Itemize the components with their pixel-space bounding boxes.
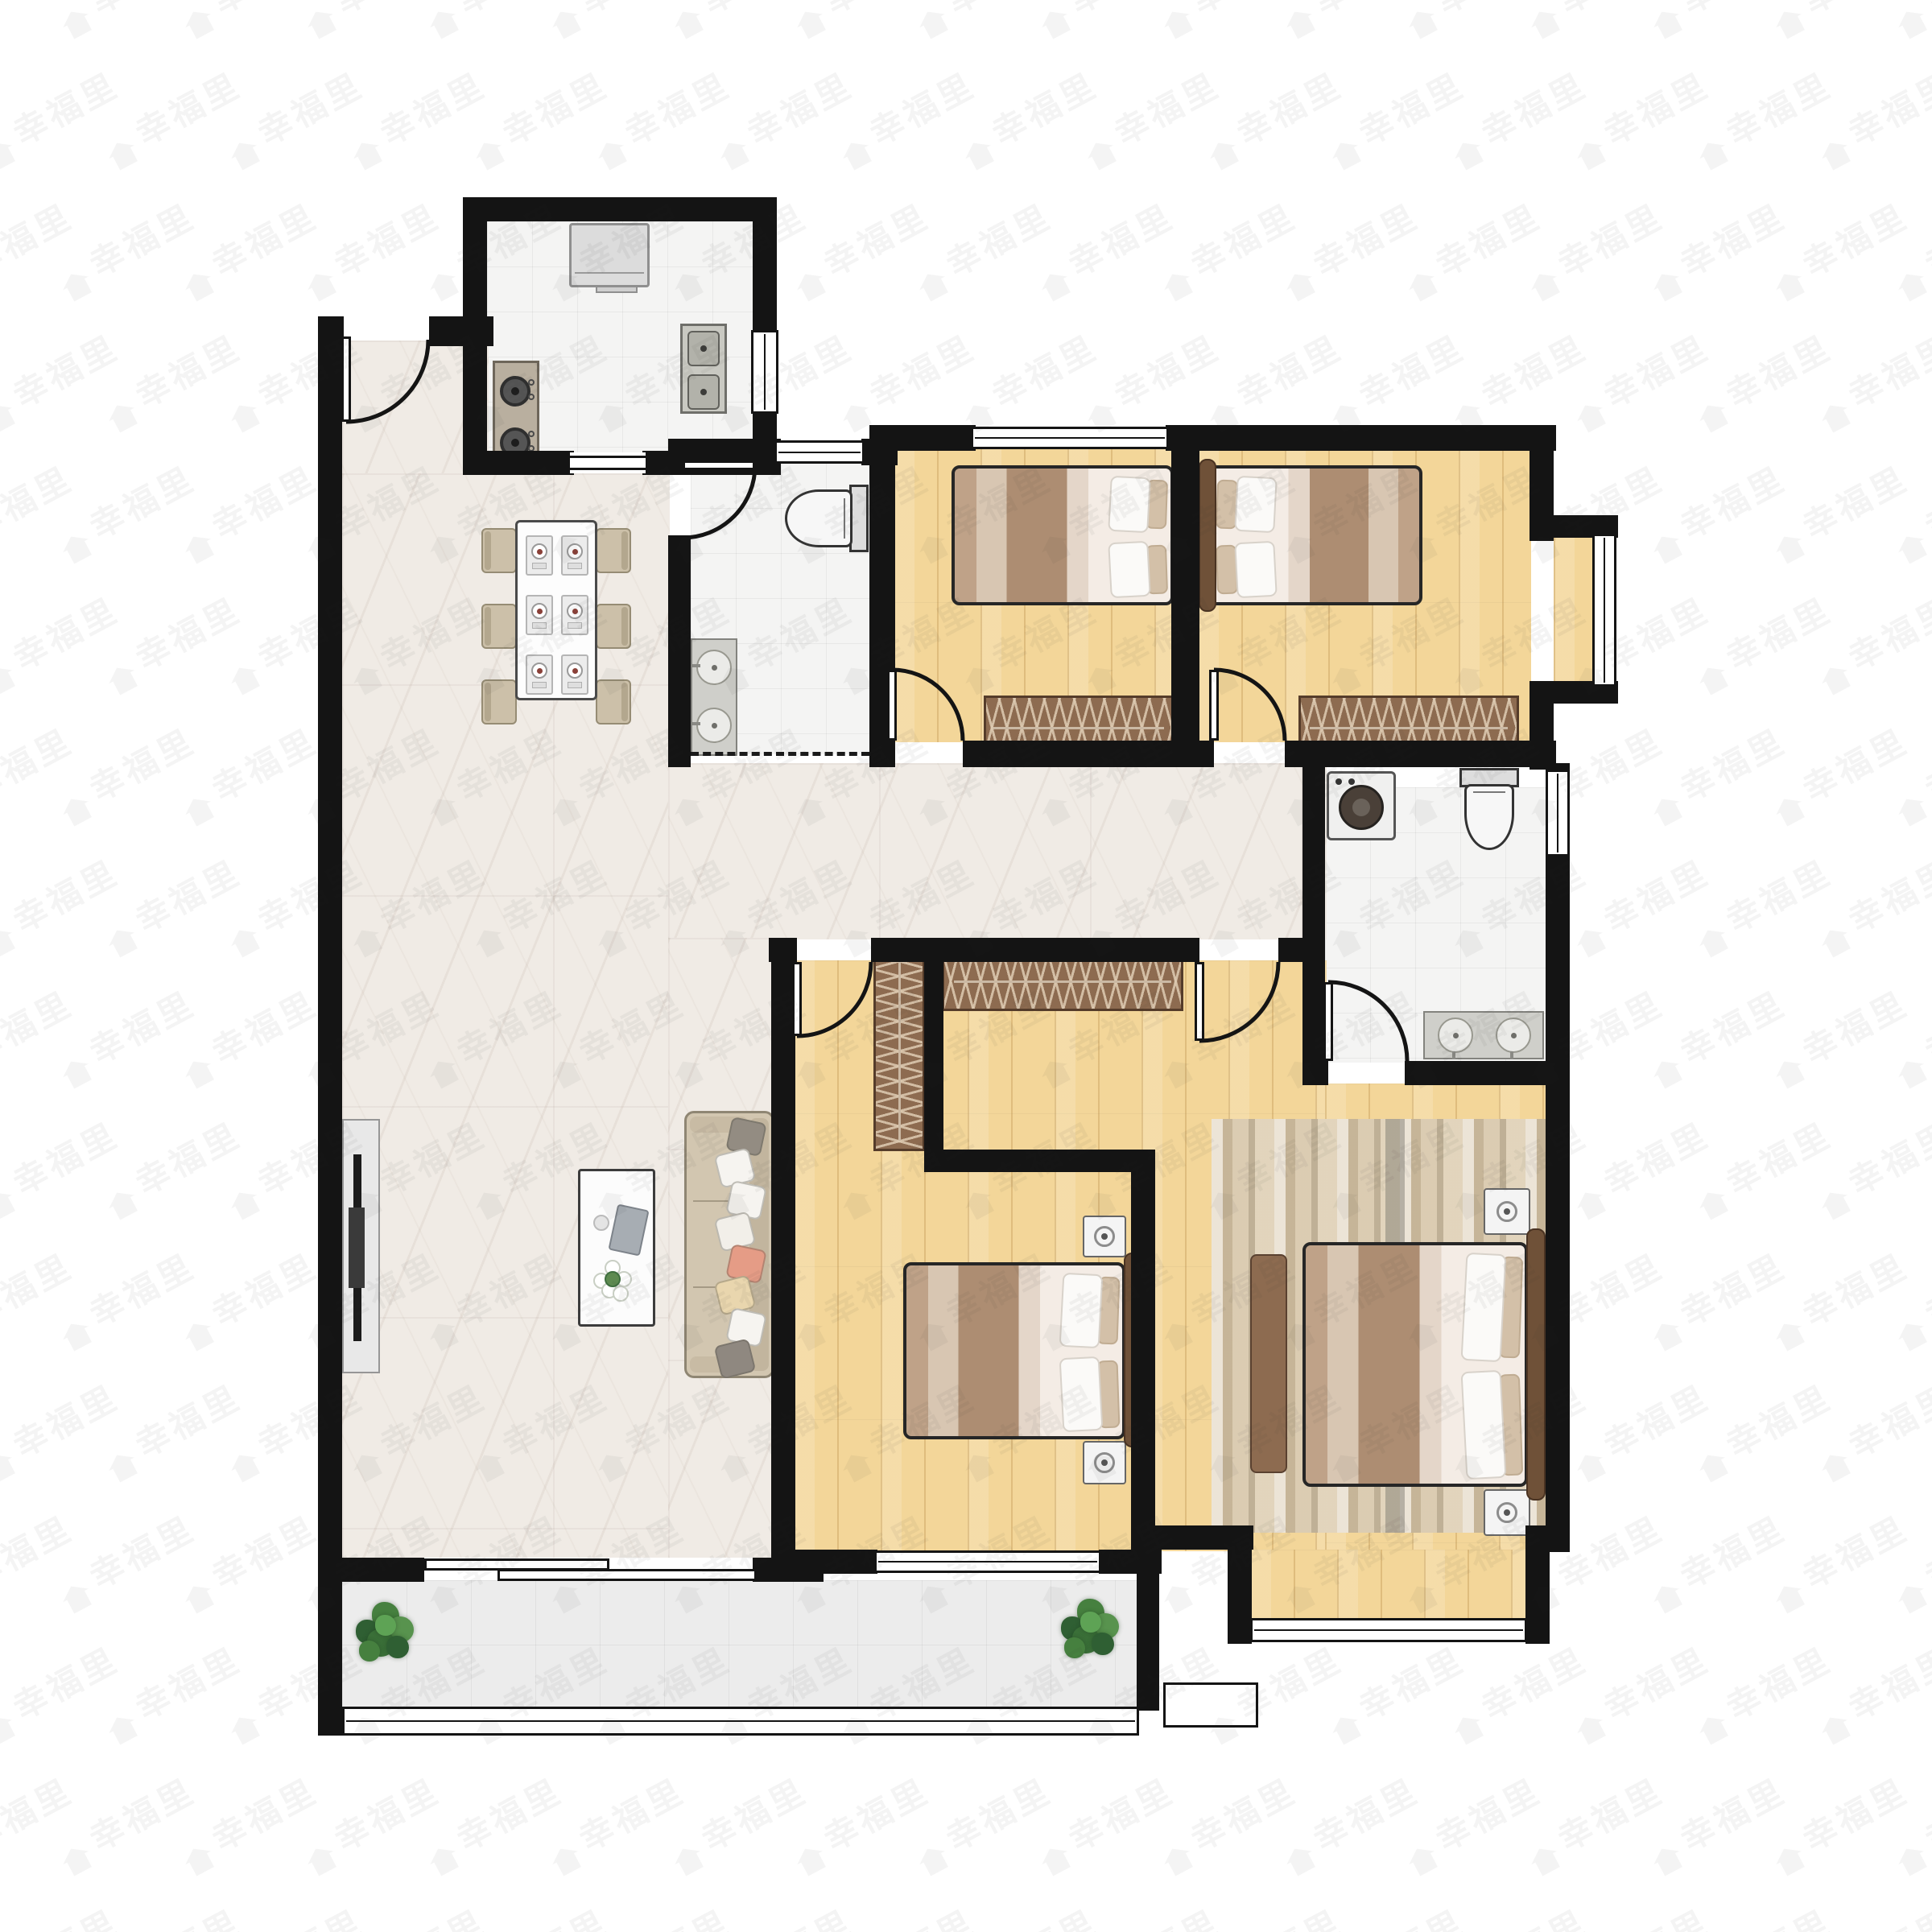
watermark-logo: 幸福里 xyxy=(1761,452,1917,567)
wall-segment xyxy=(318,316,342,1736)
watermark-logo: 幸福里 xyxy=(0,1108,126,1223)
watermark-house-icon xyxy=(1695,136,1732,172)
watermark-logo: 幸福里 xyxy=(170,1765,326,1879)
watermark-house-icon xyxy=(1649,530,1686,566)
watermark-text: 幸福里 xyxy=(0,190,80,287)
flower xyxy=(605,1271,621,1287)
watermark-house-icon xyxy=(670,5,708,41)
watermark-house-icon xyxy=(58,5,96,41)
watermark-logo: 幸福里 xyxy=(338,59,494,173)
watermark-text: 幸福里 xyxy=(737,1896,861,1932)
watermark-logo: 幸福里 xyxy=(1761,1765,1917,1879)
watermark-text: 幸福里 xyxy=(691,0,815,24)
watermark-text: 幸福里 xyxy=(569,1765,692,1861)
basin-drain xyxy=(712,665,717,671)
wall-segment xyxy=(771,962,795,1551)
sink-basin xyxy=(687,374,720,410)
plate xyxy=(567,543,583,559)
watermark-text: 幸福里 xyxy=(3,1108,126,1205)
watermark-logo: 幸福里 xyxy=(1806,1633,1932,1748)
watermark-logo: 幸福里 xyxy=(0,1240,80,1354)
watermark-text: 幸福里 xyxy=(126,321,249,418)
watermark-house-icon xyxy=(58,1579,96,1616)
bedroom3-window xyxy=(874,1550,1101,1573)
nightstand xyxy=(1083,1441,1126,1484)
watermark-text: 幸福里 xyxy=(1349,321,1472,418)
watermark-text: 幸福里 xyxy=(493,59,616,155)
watermark-house-icon xyxy=(104,136,142,172)
watermark-house-icon xyxy=(1771,1842,1809,1878)
basin xyxy=(1438,1018,1473,1053)
wall-segment xyxy=(1302,765,1325,1063)
watermark-text: 幸福里 xyxy=(615,1896,738,1932)
watermark-logo: 幸福里 xyxy=(1883,1765,1932,1879)
watermark-logo: 幸福里 xyxy=(1684,1371,1840,1485)
watermark-logo: 幸福里 xyxy=(1806,584,1932,698)
watermark-logo: 幸福里 xyxy=(782,190,938,304)
watermark-house-icon xyxy=(1159,1842,1197,1878)
pillow xyxy=(1461,1370,1507,1480)
watermark-text: 幸福里 xyxy=(1793,190,1916,287)
watermark-house-icon xyxy=(1282,1842,1319,1878)
watermark-text: 幸福里 xyxy=(737,59,861,155)
sink-drain xyxy=(700,389,707,395)
watermark-logo: 幸福里 xyxy=(0,977,80,1092)
watermark-text: 幸福里 xyxy=(126,846,249,943)
watermark-logo: 幸福里 xyxy=(1317,321,1473,436)
wall-segment xyxy=(1171,425,1199,767)
watermark-house-icon xyxy=(792,5,830,41)
watermark-logo: 幸福里 xyxy=(1439,1633,1596,1748)
watermark-logo: 幸福里 xyxy=(1439,321,1596,436)
watermark-house-icon xyxy=(1159,267,1197,303)
watermark-logo: 幸福里 xyxy=(1761,977,1917,1092)
watermark-text: 幸福里 xyxy=(1548,190,1671,287)
watermark-logo: 幸福里 xyxy=(1806,1108,1932,1223)
watermark-text: 幸福里 xyxy=(0,1502,80,1599)
wall-segment xyxy=(1525,1525,1550,1644)
ac-platform xyxy=(1163,1682,1258,1728)
plate-center xyxy=(572,668,578,674)
watermark-logo: 幸福里 xyxy=(1271,190,1427,304)
watermark-house-icon xyxy=(0,398,19,435)
watermark-logo: 幸福里 xyxy=(1761,190,1917,304)
watermark-logo: 幸福里 xyxy=(1317,59,1473,173)
watermark-logo: 幸福里 xyxy=(47,977,204,1092)
watermark-text: 幸福里 xyxy=(126,1633,249,1730)
watermark-text: 幸福里 xyxy=(3,1371,126,1468)
watermark-house-icon xyxy=(1893,1842,1931,1878)
dining-table xyxy=(515,520,597,700)
watermark-logo: 幸福里 xyxy=(170,715,326,829)
faucet xyxy=(692,722,700,725)
double-basin-vanity xyxy=(1423,1011,1544,1059)
chair-backrest xyxy=(485,683,491,721)
basin-drain xyxy=(1453,1033,1459,1038)
watermark-house-icon xyxy=(1695,1186,1732,1222)
watermark-house-icon xyxy=(914,267,952,303)
watermark-text: 幸福里 xyxy=(1793,1502,1916,1599)
bedroom2-bay-floor xyxy=(1554,536,1596,683)
window-line xyxy=(1254,1629,1523,1631)
watermark-house-icon xyxy=(180,5,218,41)
watermark-logo: 幸福里 xyxy=(460,1896,617,1932)
watermark-text: 幸福里 xyxy=(447,0,570,24)
watermark-house-icon xyxy=(1450,136,1488,172)
watermark-logo: 幸福里 xyxy=(1929,1896,1932,1932)
flower xyxy=(613,1286,629,1302)
kitchen-sink xyxy=(680,324,727,414)
coffee-table xyxy=(578,1169,655,1327)
watermark-logo: 幸福里 xyxy=(1149,190,1305,304)
bedroom1-door-swing-arc xyxy=(887,665,972,750)
nightstand xyxy=(1484,1188,1530,1235)
watermark-logo: 幸福里 xyxy=(1195,321,1351,436)
watermark-logo: 幸福里 xyxy=(904,0,1060,41)
watermark-house-icon xyxy=(792,267,830,303)
watermark-logo: 幸福里 xyxy=(170,977,326,1092)
watermark-logo: 幸福里 xyxy=(705,1896,861,1932)
watermark-text: 幸福里 xyxy=(982,321,1105,418)
plant-foliage xyxy=(1064,1637,1085,1658)
watermark-house-icon xyxy=(547,1842,585,1878)
watermark-text: 幸福里 xyxy=(80,1765,203,1861)
watermark-house-icon xyxy=(1572,1711,1610,1747)
table-tray xyxy=(608,1203,649,1256)
watermark-house-icon xyxy=(1282,267,1319,303)
watermark-logo: 幸福里 xyxy=(216,1896,372,1932)
nightstand-lamp xyxy=(1496,1201,1517,1222)
watermark-logo: 幸福里 xyxy=(904,1765,1060,1879)
watermark-text: 幸福里 xyxy=(80,452,203,549)
watermark-logo: 幸福里 xyxy=(0,715,80,829)
napkin xyxy=(532,563,547,569)
watermark-text: 幸福里 xyxy=(1104,321,1228,418)
watermark-text: 幸福里 xyxy=(1716,1633,1839,1730)
watermark-logo: 幸福里 xyxy=(0,0,80,41)
plant-foliage xyxy=(1092,1633,1114,1655)
watermark-text: 幸福里 xyxy=(3,321,126,418)
napkin xyxy=(532,622,547,629)
watermark-house-icon xyxy=(792,1842,830,1878)
wall-segment xyxy=(753,1558,824,1582)
watermark-logo: 幸福里 xyxy=(1026,0,1183,41)
place-setting xyxy=(561,595,588,635)
bedroom2-door-swing-arc xyxy=(1209,665,1294,750)
watermark-text: 幸福里 xyxy=(569,0,692,24)
plate xyxy=(531,663,547,679)
watermark-text: 幸福里 xyxy=(0,452,80,549)
watermark-text: 幸福里 xyxy=(1181,1765,1304,1861)
kitchen-window xyxy=(751,330,778,414)
bath2-door-swing-arc xyxy=(1323,977,1417,1071)
plant-foliage xyxy=(359,1641,380,1662)
watermark-logo: 幸福里 xyxy=(1638,715,1794,829)
watermark-house-icon xyxy=(1817,923,1855,960)
watermark-text: 幸福里 xyxy=(1915,0,1932,24)
watermark-house-icon xyxy=(226,1711,264,1747)
sink-basin xyxy=(687,331,720,366)
toilet xyxy=(785,485,869,552)
watermark-text: 幸福里 xyxy=(814,1765,937,1861)
watermark-logo: 幸福里 xyxy=(93,1633,250,1748)
watermark-text: 幸福里 xyxy=(1716,846,1839,943)
watermark-house-icon xyxy=(471,136,509,172)
wall-segment xyxy=(1228,1525,1252,1644)
watermark-logo: 幸福里 xyxy=(1439,1896,1596,1932)
watermark-text: 幸福里 xyxy=(1716,59,1839,155)
watermark-text: 幸福里 xyxy=(3,1896,126,1932)
watermark-logo: 幸福里 xyxy=(537,1765,693,1879)
watermark-logo: 幸福里 xyxy=(1761,0,1917,41)
watermark-house-icon xyxy=(1327,136,1365,172)
watermark-logo: 幸福里 xyxy=(1638,1502,1794,1616)
plant xyxy=(1061,1599,1122,1660)
watermark-logo: 幸福里 xyxy=(1562,1896,1718,1932)
watermark-house-icon xyxy=(1159,5,1197,41)
watermark-text: 幸福里 xyxy=(1594,1108,1717,1205)
wall-segment xyxy=(753,221,777,338)
watermark-text: 幸福里 xyxy=(1915,1765,1932,1861)
bed-secondary-1 xyxy=(952,465,1174,605)
napkin xyxy=(568,682,582,688)
watermark-text: 幸福里 xyxy=(370,59,493,155)
watermark-text: 幸福里 xyxy=(1670,715,1794,811)
watermark-text: 幸福里 xyxy=(1349,1896,1472,1932)
watermark-house-icon xyxy=(1817,661,1855,697)
watermark-house-icon xyxy=(1526,267,1564,303)
watermark-logo: 幸福里 xyxy=(47,1502,204,1616)
watermark-house-icon xyxy=(303,1842,341,1878)
watermark-text: 幸福里 xyxy=(0,715,80,811)
basin-drain xyxy=(1511,1033,1517,1038)
watermark-text: 幸福里 xyxy=(1104,59,1228,155)
pillow xyxy=(1234,476,1278,534)
watermark-text: 幸福里 xyxy=(1670,452,1794,549)
balcony-slider-panel xyxy=(497,1569,757,1581)
watermark-text: 幸福里 xyxy=(1716,1896,1839,1932)
nightstand-lamp xyxy=(1496,1502,1517,1523)
watermark-house-icon xyxy=(0,923,19,960)
basin xyxy=(696,708,732,743)
wardrobe-rail xyxy=(898,962,901,1141)
watermark-house-icon xyxy=(1404,267,1442,303)
place-setting xyxy=(526,595,553,635)
watermark-logo: 幸福里 xyxy=(1929,584,1932,698)
plate-center xyxy=(537,609,543,614)
watermark-logo: 幸福里 xyxy=(1317,1633,1473,1748)
watermark-house-icon xyxy=(104,398,142,435)
watermark-logo: 幸福里 xyxy=(1883,715,1932,829)
watermark-logo: 幸福里 xyxy=(1883,0,1932,41)
wall-segment xyxy=(924,950,943,1166)
basin xyxy=(696,650,732,685)
watermark-logo: 幸福里 xyxy=(1638,190,1794,304)
sofa xyxy=(684,1111,774,1378)
headboard xyxy=(1199,459,1216,612)
pillow xyxy=(1461,1253,1507,1362)
watermark-logo: 幸福里 xyxy=(782,0,938,41)
dining-chair xyxy=(596,679,631,724)
washing-machine xyxy=(1327,771,1396,840)
watermark-text: 幸福里 xyxy=(80,190,203,287)
watermark-logo: 幸福里 xyxy=(93,846,250,960)
watermark-house-icon xyxy=(1817,1186,1855,1222)
watermark-logo: 幸福里 xyxy=(460,59,617,173)
nightstand-lamp-dot xyxy=(1504,1208,1510,1215)
watermark-house-icon xyxy=(58,792,96,828)
watermark-logo: 幸福里 xyxy=(415,0,571,41)
watermark-text: 幸福里 xyxy=(324,0,448,24)
watermark-text: 幸福里 xyxy=(493,1896,616,1932)
plate-center xyxy=(572,609,578,614)
watermark-text: 幸福里 xyxy=(202,190,325,287)
watermark-text: 幸福里 xyxy=(80,977,203,1074)
watermark-text: 幸福里 xyxy=(1915,1502,1932,1599)
watermark-text: 幸福里 xyxy=(1839,321,1932,418)
threshold-line xyxy=(570,468,646,470)
washer-drum xyxy=(1339,785,1384,830)
watermark-text: 幸福里 xyxy=(80,0,203,24)
watermark-house-icon xyxy=(180,1842,218,1878)
watermark-house-icon xyxy=(1817,1448,1855,1484)
wardrobe xyxy=(873,952,925,1151)
watermark-house-icon xyxy=(0,136,19,172)
watermark-logo: 幸福里 xyxy=(828,321,984,436)
watermark-text: 幸福里 xyxy=(1839,1896,1932,1932)
watermark-house-icon xyxy=(1037,1842,1075,1878)
watermark-house-icon xyxy=(0,1711,19,1747)
wall-segment xyxy=(318,1558,424,1582)
watermark-text: 幸福里 xyxy=(126,584,249,680)
watermark-house-icon xyxy=(226,1448,264,1484)
watermark-text: 幸福里 xyxy=(447,1765,570,1861)
watermark-house-icon xyxy=(104,661,142,697)
master-bay-floor xyxy=(1250,1550,1527,1620)
watermark-text: 幸福里 xyxy=(1793,452,1916,549)
watermark-house-icon xyxy=(1695,398,1732,435)
watermark-text: 幸福里 xyxy=(202,1765,325,1861)
watermark-logo: 幸福里 xyxy=(1806,1896,1932,1932)
watermark-text: 幸福里 xyxy=(1548,0,1671,24)
watermark-house-icon xyxy=(1893,1055,1931,1091)
table-flowers xyxy=(593,1258,637,1302)
watermark-logo: 幸福里 xyxy=(1149,1765,1305,1879)
chair-backrest xyxy=(621,607,628,646)
watermark-logo: 幸福里 xyxy=(0,1502,80,1616)
wall-segment xyxy=(1131,1150,1155,1552)
watermark-text: 幸福里 xyxy=(0,0,80,24)
plate-center xyxy=(537,668,543,674)
watermark-logo: 幸福里 xyxy=(216,59,372,173)
dining-chair xyxy=(596,604,631,649)
watermark-logo: 幸福里 xyxy=(1562,321,1718,436)
balcony-railing xyxy=(342,1707,1139,1736)
plate xyxy=(567,603,583,619)
watermark-text: 幸福里 xyxy=(1839,846,1932,943)
watermark-logo: 幸福里 xyxy=(1638,0,1794,41)
watermark-text: 幸福里 xyxy=(80,1240,203,1336)
watermark-logo: 幸福里 xyxy=(1761,1240,1917,1354)
watermark-text: 幸福里 xyxy=(1472,1633,1595,1730)
dining-chair xyxy=(481,528,517,573)
basin-drain xyxy=(712,723,717,729)
watermark-house-icon xyxy=(58,1842,96,1878)
watermark-house-icon xyxy=(1771,1579,1809,1616)
stove-knob xyxy=(528,394,535,400)
watermark-logo: 幸福里 xyxy=(705,59,861,173)
watermark-logo: 幸福里 xyxy=(1684,59,1840,173)
watermark-text: 幸福里 xyxy=(1594,1371,1717,1468)
burner-center xyxy=(511,439,519,447)
watermark-house-icon xyxy=(1893,267,1931,303)
watermark-logo: 幸福里 xyxy=(93,1896,250,1932)
wardrobe-rail xyxy=(954,980,1172,983)
watermark-house-icon xyxy=(1572,136,1610,172)
watermark-text: 幸福里 xyxy=(1594,321,1717,418)
chair-backrest xyxy=(485,531,491,570)
watermark-logo: 幸福里 xyxy=(170,1240,326,1354)
watermark-logo: 幸福里 xyxy=(292,190,448,304)
watermark-text: 幸福里 xyxy=(1181,0,1304,24)
watermark-logo: 幸福里 xyxy=(1562,59,1718,173)
pillow xyxy=(1234,541,1278,599)
watermark-logo: 幸福里 xyxy=(93,59,250,173)
watermark-logo: 幸福里 xyxy=(828,1896,984,1932)
watermark-logo: 幸福里 xyxy=(1562,846,1718,960)
toilet-seat-line xyxy=(1473,791,1505,793)
watermark-text: 幸福里 xyxy=(1839,1108,1932,1205)
headboard xyxy=(1526,1228,1546,1501)
watermark-house-icon xyxy=(425,5,463,41)
watermark-logo: 幸福里 xyxy=(1393,0,1550,41)
plate xyxy=(531,603,547,619)
watermark-logo: 幸福里 xyxy=(1026,1765,1183,1879)
watermark-text: 幸福里 xyxy=(1915,452,1932,549)
watermark-logo: 幸福里 xyxy=(1883,452,1932,567)
chair-backrest xyxy=(621,683,628,721)
plant xyxy=(356,1602,417,1668)
watermark-house-icon xyxy=(0,1448,19,1484)
watermark-house-icon xyxy=(1695,1448,1732,1484)
gas-stove xyxy=(493,361,539,464)
watermark-text: 幸福里 xyxy=(126,59,249,155)
watermark-text: 幸福里 xyxy=(3,846,126,943)
watermark-text: 幸福里 xyxy=(1426,0,1549,24)
watermark-text: 幸福里 xyxy=(1594,1633,1717,1730)
watermark-text: 幸福里 xyxy=(1472,321,1595,418)
wall-segment xyxy=(1137,1570,1159,1711)
watermark-house-icon xyxy=(1572,923,1610,960)
watermark-text: 幸福里 xyxy=(1059,0,1182,24)
watermark-house-icon xyxy=(303,267,341,303)
watermark-logo: 幸福里 xyxy=(1883,1502,1932,1616)
bed-secondary-2 xyxy=(1205,465,1422,605)
watermark-house-icon xyxy=(226,136,264,172)
watermark-text: 幸福里 xyxy=(1716,584,1839,680)
bath2-window xyxy=(1546,770,1570,857)
watermark-house-icon xyxy=(547,5,585,41)
watermark-text: 幸福里 xyxy=(860,1896,983,1932)
watermark-text: 幸福里 xyxy=(1227,59,1350,155)
watermark-house-icon xyxy=(180,530,218,566)
watermark-text: 幸福里 xyxy=(1670,190,1794,287)
watermark-logo: 幸福里 xyxy=(1929,1633,1932,1748)
watermark-house-icon xyxy=(1450,1711,1488,1747)
toilet-bowl xyxy=(785,489,852,547)
bath1-open-threshold xyxy=(691,752,869,756)
watermark-text: 幸福里 xyxy=(370,1896,493,1932)
